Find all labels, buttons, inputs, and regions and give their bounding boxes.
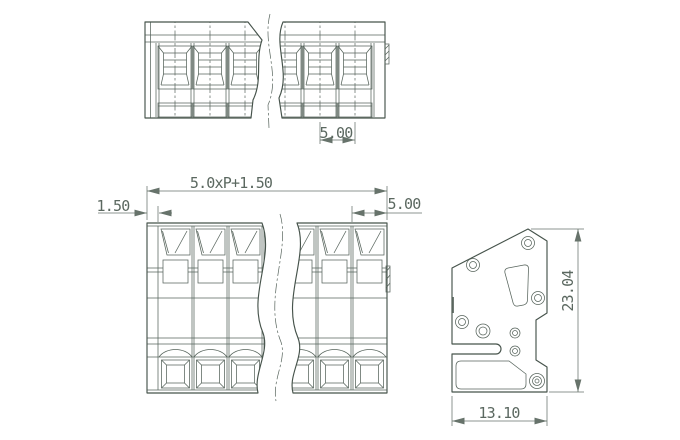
top-view-right-outline bbox=[279, 22, 385, 118]
dimension-left-margin: 1.50 bbox=[97, 197, 172, 222]
top-view: 5.00 bbox=[145, 13, 389, 144]
dimension-depth-label: 13.10 bbox=[478, 404, 520, 422]
dimension-total-width-label: 5.0xP+1.50 bbox=[190, 174, 273, 192]
side-tab bbox=[385, 44, 389, 64]
technical-drawing-canvas: 5.00 bbox=[0, 0, 680, 440]
dimension-pitch-front-label: 5.00 bbox=[388, 195, 422, 213]
dimension-height-label: 23.04 bbox=[559, 270, 577, 312]
dimension-pitch-top-label: 5.00 bbox=[320, 124, 354, 142]
side-view-outline bbox=[452, 229, 547, 392]
wire-cavity bbox=[456, 361, 526, 389]
dimension-height: 23.04 bbox=[531, 229, 584, 392]
lever-slot bbox=[505, 265, 529, 306]
top-view-left-outline bbox=[145, 22, 262, 118]
break-line bbox=[275, 214, 283, 401]
dimension-total-width: 5.0xP+1.50 bbox=[147, 174, 387, 220]
front-view: 5.0xP+1.50 1.50 5.00 bbox=[97, 174, 422, 401]
front-view-right-outline bbox=[292, 223, 387, 393]
dimension-left-margin-label: 1.50 bbox=[97, 197, 131, 215]
break-line bbox=[268, 14, 273, 128]
dimension-depth: 13.10 bbox=[452, 396, 547, 426]
terminal-block-drawing: 5.00 bbox=[0, 0, 680, 440]
dimension-pitch-top: 5.00 bbox=[320, 122, 355, 144]
side-view: 23.04 13.10 bbox=[452, 229, 584, 426]
